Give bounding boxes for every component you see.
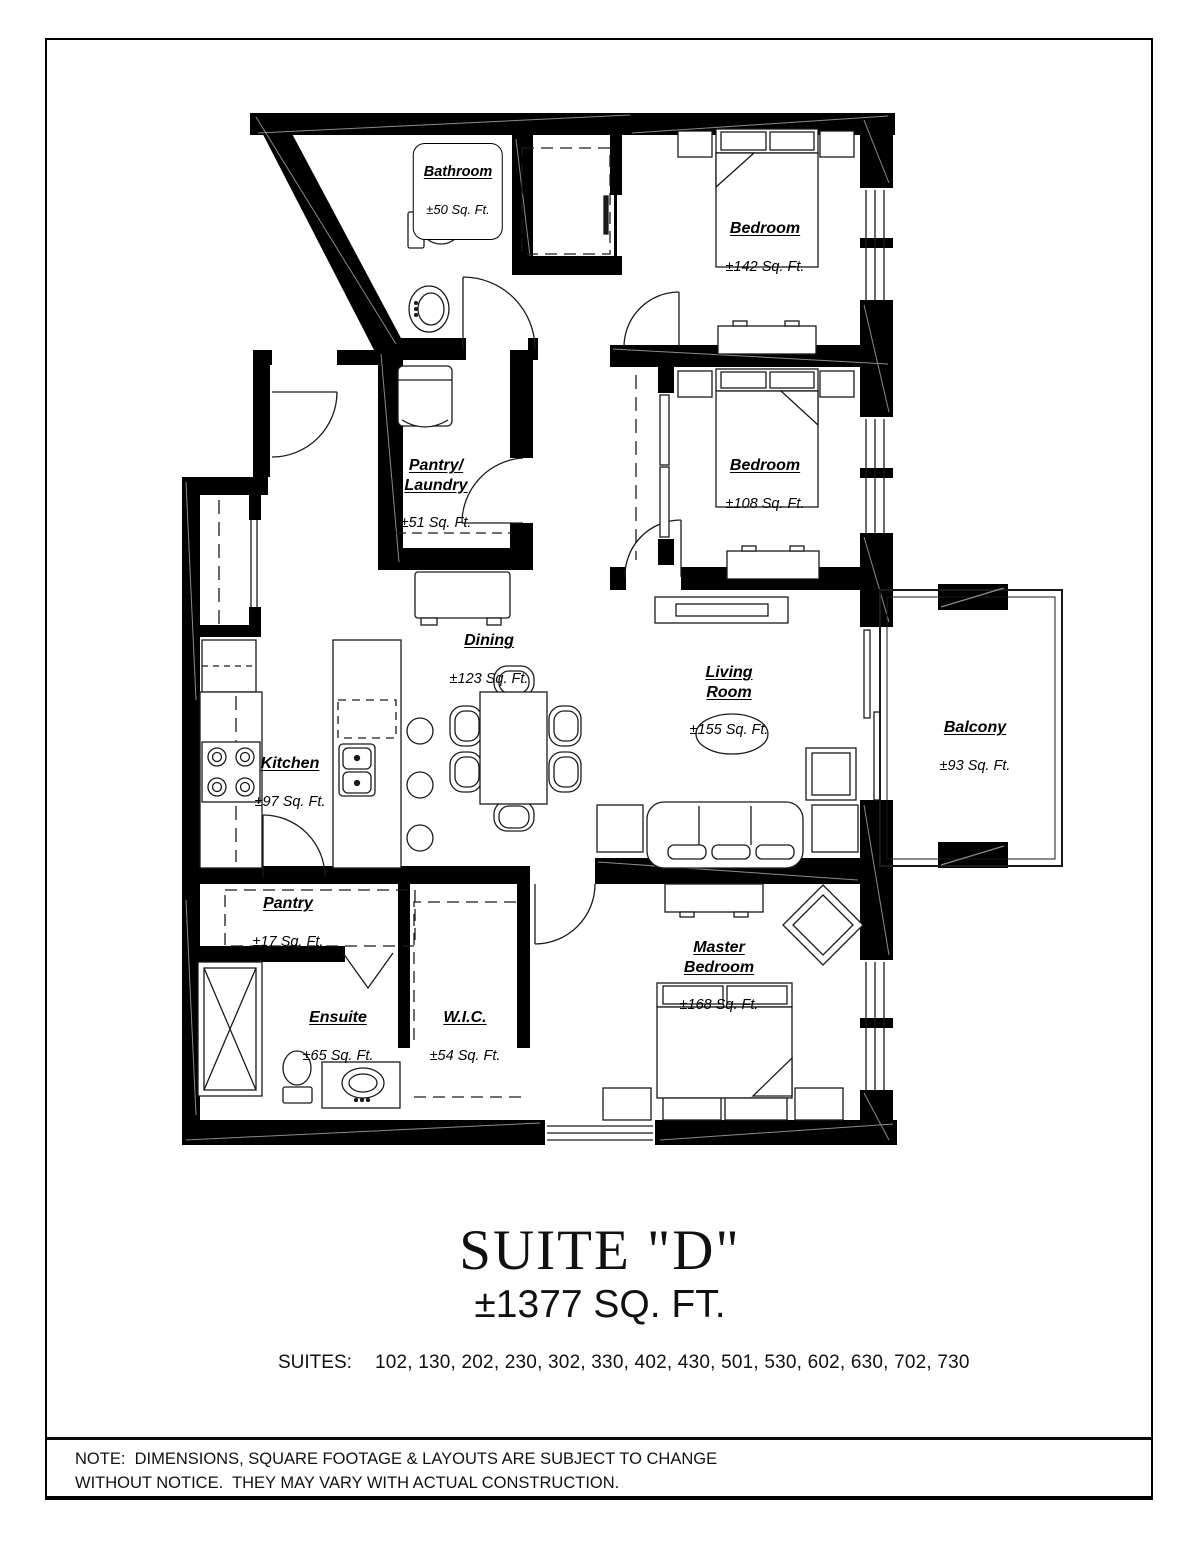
page-border (45, 38, 1153, 1500)
floor-plan-page: Bathroom ±50 Sq. Ft. Bedroom ±142 Sq. Ft… (0, 0, 1200, 1553)
